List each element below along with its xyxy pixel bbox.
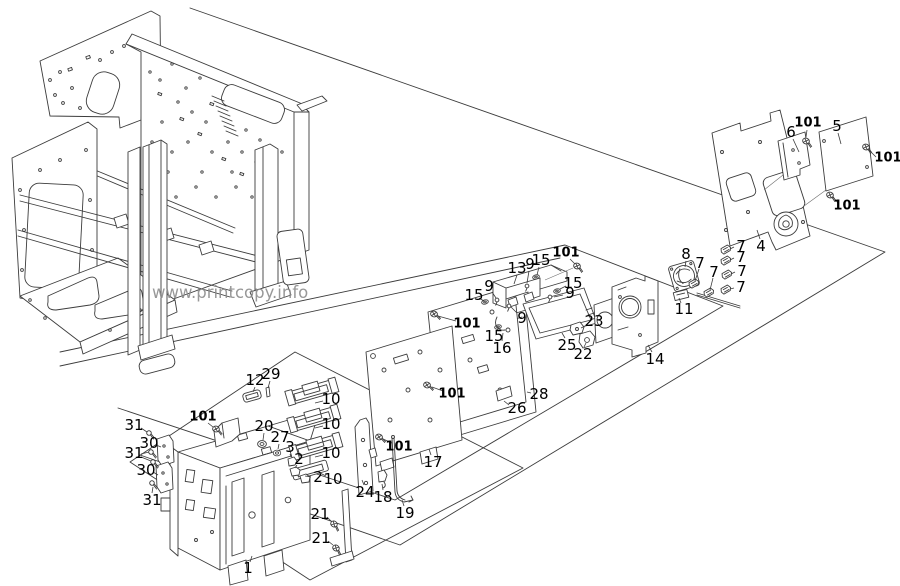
part-callout-7: 7 xyxy=(736,278,746,296)
part-callout-31: 31 xyxy=(142,491,161,509)
part-callout-101: 101 xyxy=(385,440,412,455)
part-callout-101: 101 xyxy=(794,116,821,131)
part-callout-7: 7 xyxy=(709,263,719,281)
part-callout-24: 24 xyxy=(355,483,374,501)
watermark: www.printcopy.info xyxy=(152,283,308,302)
part-2b xyxy=(300,474,310,483)
part-callout-19: 19 xyxy=(395,504,414,522)
part-callout-21: 21 xyxy=(311,529,330,547)
part-callout-29: 29 xyxy=(261,365,280,383)
part-callout-2: 2 xyxy=(313,468,323,486)
parts-diagram-page: www.printcopy.info 610151011014777787711… xyxy=(0,0,900,586)
part-callout-16: 16 xyxy=(492,339,511,357)
exploded-parts-diagram: www.printcopy.info 610151011014777787711… xyxy=(0,0,900,586)
part-callout-10: 10 xyxy=(321,390,340,408)
part-callout-2: 2 xyxy=(294,450,304,468)
part-callout-13: 13 xyxy=(507,259,526,277)
part-callout-4: 4 xyxy=(756,237,766,255)
part-callout-101: 101 xyxy=(189,410,216,425)
part-callout-31: 31 xyxy=(124,444,143,462)
part-27 xyxy=(273,450,280,456)
part-callout-17: 17 xyxy=(423,453,442,471)
part-callout-5: 5 xyxy=(832,117,842,135)
leader-line xyxy=(806,130,807,137)
part-callout-15: 15 xyxy=(464,286,483,304)
machine-frame xyxy=(12,11,327,375)
part-29 xyxy=(266,387,270,397)
part-callout-23: 23 xyxy=(584,312,603,330)
part-callout-18: 18 xyxy=(373,488,392,506)
part-callout-10: 10 xyxy=(321,415,340,433)
part-callout-15: 15 xyxy=(531,251,550,269)
part-callout-10: 10 xyxy=(323,470,342,488)
part-callout-9: 9 xyxy=(517,309,527,327)
part-callout-14: 14 xyxy=(645,350,664,368)
part-callout-101: 101 xyxy=(552,246,579,261)
part-callout-7: 7 xyxy=(695,254,705,272)
fan-bracket-cluster xyxy=(594,244,740,357)
part-callout-101: 101 xyxy=(438,387,465,402)
part-callout-101: 101 xyxy=(874,151,900,166)
part-callout-101: 101 xyxy=(453,317,480,332)
part-callout-26: 26 xyxy=(507,399,526,417)
part-2a xyxy=(290,467,300,476)
part-callout-22: 22 xyxy=(573,345,592,363)
part-callout-9: 9 xyxy=(484,277,494,295)
part-callout-8: 8 xyxy=(681,245,691,263)
part-callout-9: 9 xyxy=(565,284,575,302)
part-callout-10: 10 xyxy=(321,444,340,462)
part-12 xyxy=(242,389,262,403)
part-callout-31: 31 xyxy=(124,416,143,434)
part-callout-21: 21 xyxy=(310,505,329,523)
part-callout-30: 30 xyxy=(136,461,155,479)
part-18 xyxy=(378,470,387,482)
part-callout-1: 1 xyxy=(243,559,253,577)
part-callout-28: 28 xyxy=(529,385,548,403)
part-callout-101: 101 xyxy=(833,199,860,214)
part-20 xyxy=(258,441,267,448)
part-callout-11: 11 xyxy=(674,300,693,318)
